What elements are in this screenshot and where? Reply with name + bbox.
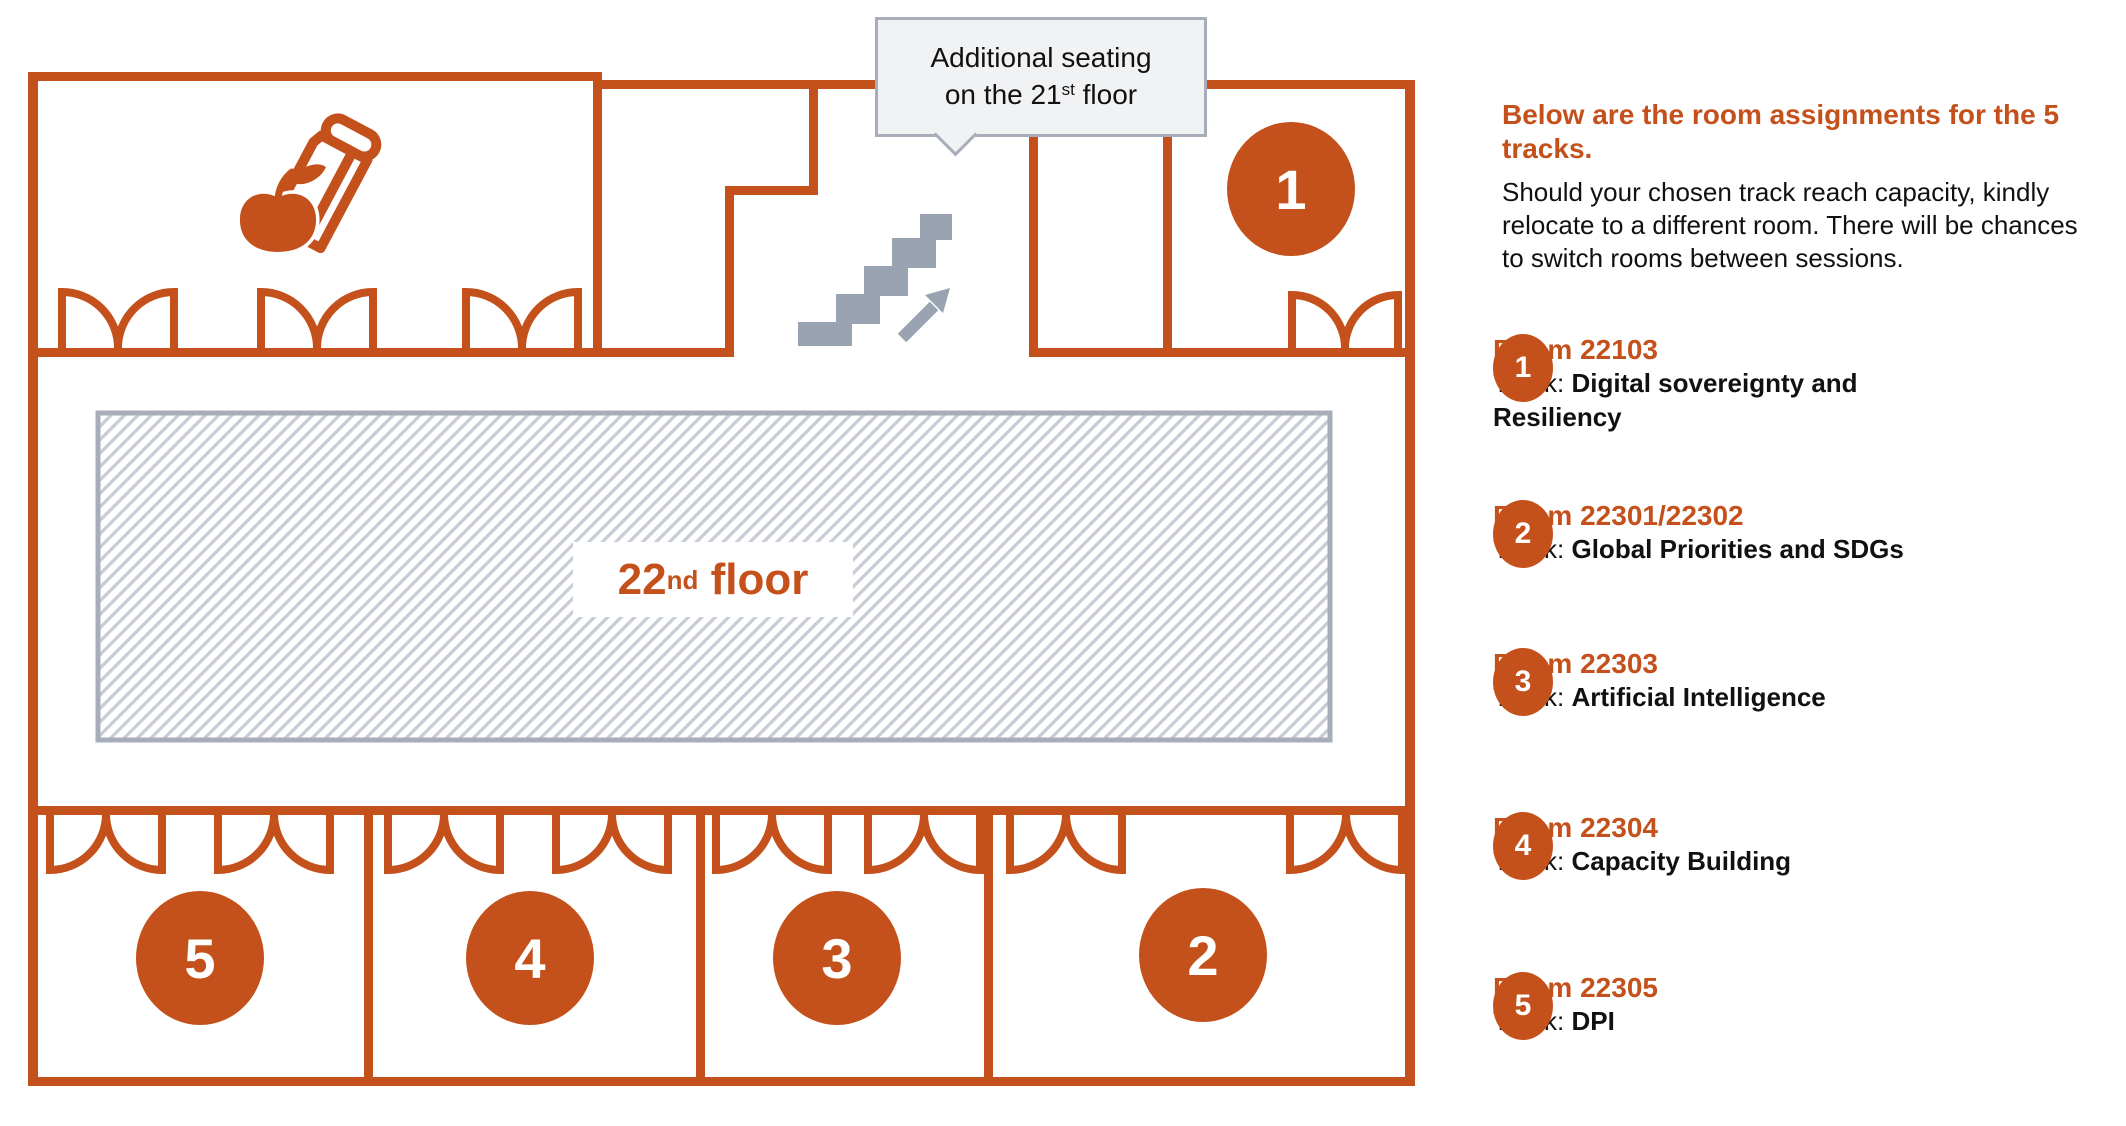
track-5-room: Room 22305	[1493, 970, 1938, 1005]
stairs-arrow-shaft	[902, 306, 934, 338]
stairs-steps	[798, 214, 952, 346]
panel-body: Should your chosen track reach capacity,…	[1502, 176, 2102, 274]
double-door	[388, 814, 500, 870]
double-door	[716, 814, 828, 870]
track-4-track: Track: Capacity Building	[1493, 845, 1938, 879]
track-3-badge: 3	[1493, 648, 1553, 716]
track-item-2: 2 Room 22301/22302 Track: Global Priorit…	[1493, 498, 1938, 567]
plan-marker-2-label: 2	[1187, 923, 1218, 988]
wall-upper-strip-bottom-left	[28, 348, 734, 357]
track-4-room: Room 22304	[1493, 810, 1938, 845]
wall-divider-4-3	[696, 810, 705, 1086]
double-door	[218, 814, 330, 870]
track-item-5: 5 Room 22305 Track: DPI	[1493, 970, 1938, 1039]
track-5-badge: 5	[1493, 972, 1553, 1040]
track-item-1: 1 Room 22103 Track: Digital sovereignty …	[1493, 332, 1938, 435]
double-door	[50, 814, 162, 870]
slide: 1 2 3 4 5 22nd floor Additional seating …	[0, 0, 2126, 1126]
track-5-track: Track: DPI	[1493, 1005, 1938, 1039]
wall-top-left	[28, 72, 602, 81]
plan-marker-2: 2	[1139, 888, 1267, 1022]
wall-step-upper	[809, 80, 818, 195]
plan-marker-4-label: 4	[514, 926, 545, 991]
track-3-track: Track: Artificial Intelligence	[1493, 681, 1938, 715]
plan-marker-3-label: 3	[821, 926, 852, 991]
double-door	[1010, 814, 1122, 870]
callout-line1: Additional seating	[930, 40, 1151, 77]
callout-additional-seating: Additional seating on the 21st floor	[875, 17, 1207, 137]
panel-heading: Below are the room assignments for the 5…	[1502, 98, 2077, 166]
plan-marker-4: 4	[466, 891, 594, 1025]
plan-marker-5-label: 5	[184, 926, 215, 991]
wall-step-lower	[725, 186, 734, 357]
double-door	[466, 292, 578, 348]
double-door	[261, 292, 373, 348]
track-2-room: Room 22301/22302	[1493, 498, 1938, 533]
plan-marker-1: 1	[1227, 122, 1355, 256]
double-door	[868, 814, 980, 870]
double-door	[62, 292, 174, 348]
track-item-4: 4 Room 22304 Track: Capacity Building	[1493, 810, 1938, 879]
double-door	[1290, 814, 1402, 870]
double-door	[1292, 295, 1398, 348]
wall-left	[28, 72, 38, 1086]
wall-lower-strip-top	[28, 806, 1415, 815]
wall-divider-3-2	[984, 810, 993, 1086]
wall-step-jog	[725, 186, 818, 195]
track-3-room: Room 22303	[1493, 646, 1938, 681]
double-door	[556, 814, 668, 870]
apple-body	[240, 194, 316, 252]
floor-label: 22nd floor	[573, 542, 853, 617]
plan-marker-5: 5	[136, 891, 264, 1025]
track-1-room: Room 22103	[1493, 332, 1938, 367]
stairs-up-icon	[798, 214, 952, 346]
plan-marker-3: 3	[773, 891, 901, 1025]
track-1-track: Track: Digital sovereignty and Resilienc…	[1493, 367, 1938, 435]
track-1-badge: 1	[1493, 334, 1553, 402]
floor-number: 22	[618, 555, 667, 605]
track-4-badge: 4	[1493, 812, 1553, 880]
wall-divider-5-4	[364, 810, 373, 1086]
track-2-track: Track: Global Priorities and SDGs	[1493, 533, 1938, 567]
callout-line2: on the 21st floor	[945, 77, 1137, 114]
track-item-3: 3 Room 22303 Track: Artificial Intellige…	[1493, 646, 1938, 715]
wall-right	[1405, 80, 1415, 1086]
lunch-bag-and-apple-icon	[240, 112, 381, 252]
wall-bottom	[28, 1077, 1415, 1086]
floor-word: floor	[698, 555, 808, 605]
doors-lower-strip	[50, 814, 1402, 870]
wall-upper-strip-bottom-right	[1029, 348, 1415, 357]
plan-marker-1-label: 1	[1275, 157, 1306, 222]
wall-lunch-room-right	[593, 72, 602, 357]
track-2-badge: 2	[1493, 500, 1553, 568]
